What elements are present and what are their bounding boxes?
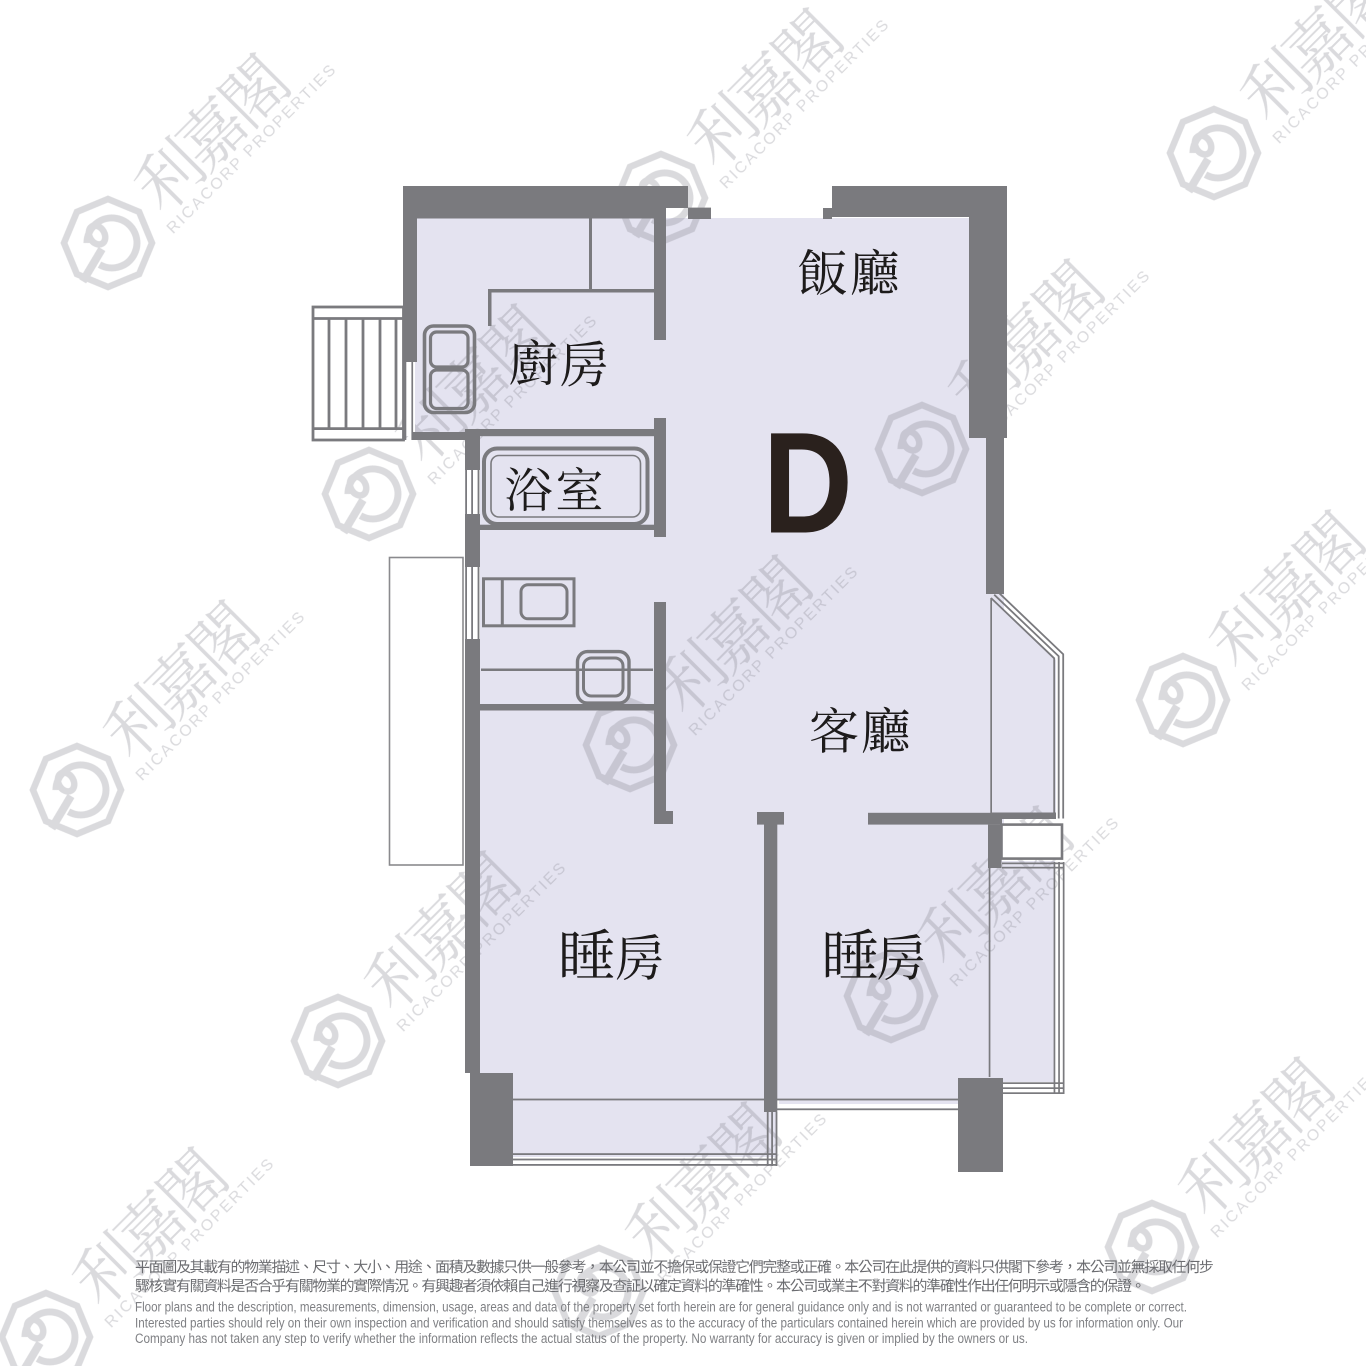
svg-text:Interested parties should rely: Interested parties should rely on their …	[135, 1315, 1183, 1330]
svg-text:Company has not taken any step: Company has not taken any step to verify…	[135, 1331, 1028, 1346]
svg-text:Floor plans and the descriptio: Floor plans and the description, measure…	[135, 1300, 1187, 1315]
svg-text:D: D	[763, 402, 853, 563]
